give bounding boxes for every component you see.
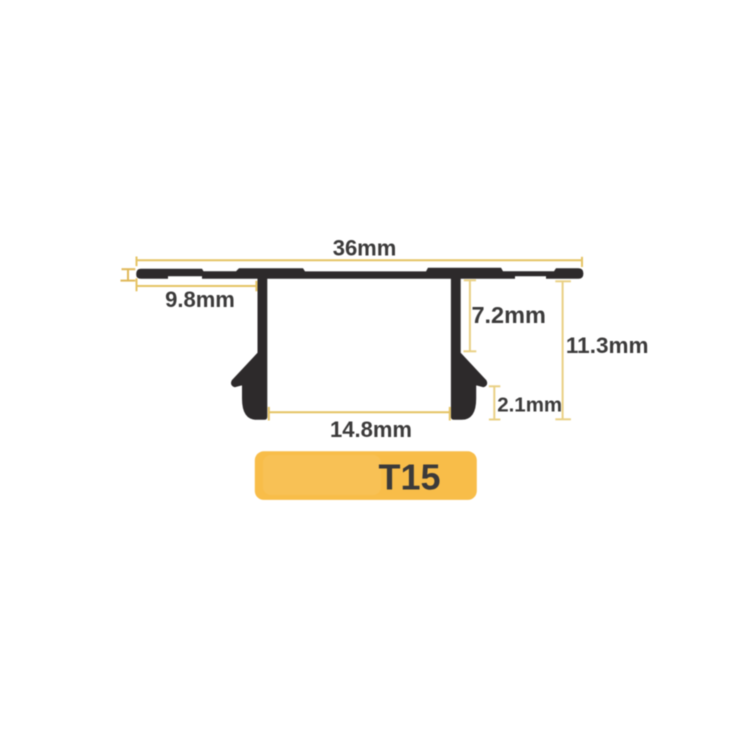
svg-text:T15: T15 <box>378 457 440 498</box>
svg-text:7.2mm: 7.2mm <box>471 302 545 328</box>
svg-text:9.8mm: 9.8mm <box>165 287 235 312</box>
svg-text:14.8mm: 14.8mm <box>330 417 412 442</box>
svg-text:11.3mm: 11.3mm <box>566 333 649 358</box>
svg-text:2.1mm: 2.1mm <box>497 394 562 417</box>
svg-text:36mm: 36mm <box>333 236 397 261</box>
